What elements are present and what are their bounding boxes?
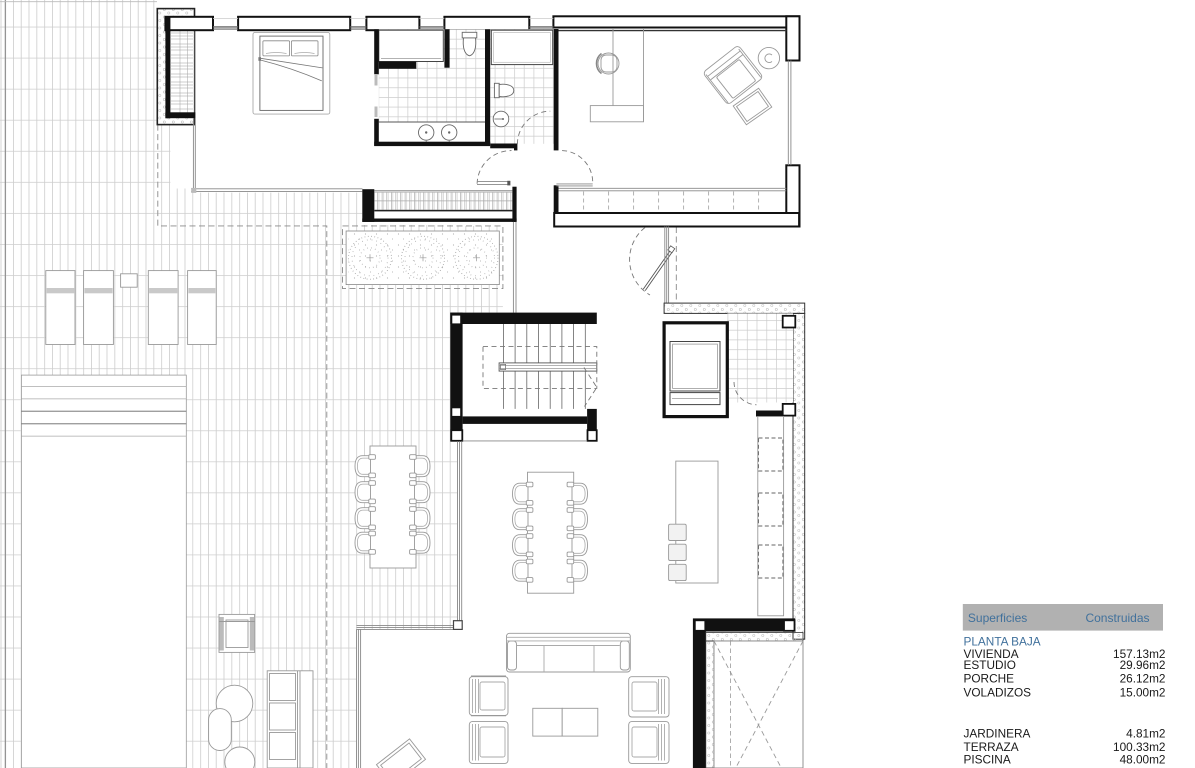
svg-text:VOLADIZOS: VOLADIZOS [964, 686, 1032, 700]
svg-text:29.96m2: 29.96m2 [1120, 658, 1166, 672]
svg-text:PORCHE: PORCHE [964, 672, 1015, 686]
svg-text:ESTUDIO: ESTUDIO [964, 658, 1016, 672]
svg-text:48.00m2: 48.00m2 [1120, 753, 1166, 767]
svg-text:26.12m2: 26.12m2 [1120, 672, 1166, 686]
svg-text:4.81m2: 4.81m2 [1126, 727, 1165, 741]
svg-text:JARDINERA: JARDINERA [964, 727, 1031, 741]
svg-text:Construidas: Construidas [1085, 611, 1149, 625]
svg-text:PISCINA: PISCINA [964, 753, 1011, 767]
svg-text:Superficies: Superficies [968, 611, 1027, 625]
svg-text:15.00m2: 15.00m2 [1120, 686, 1166, 700]
